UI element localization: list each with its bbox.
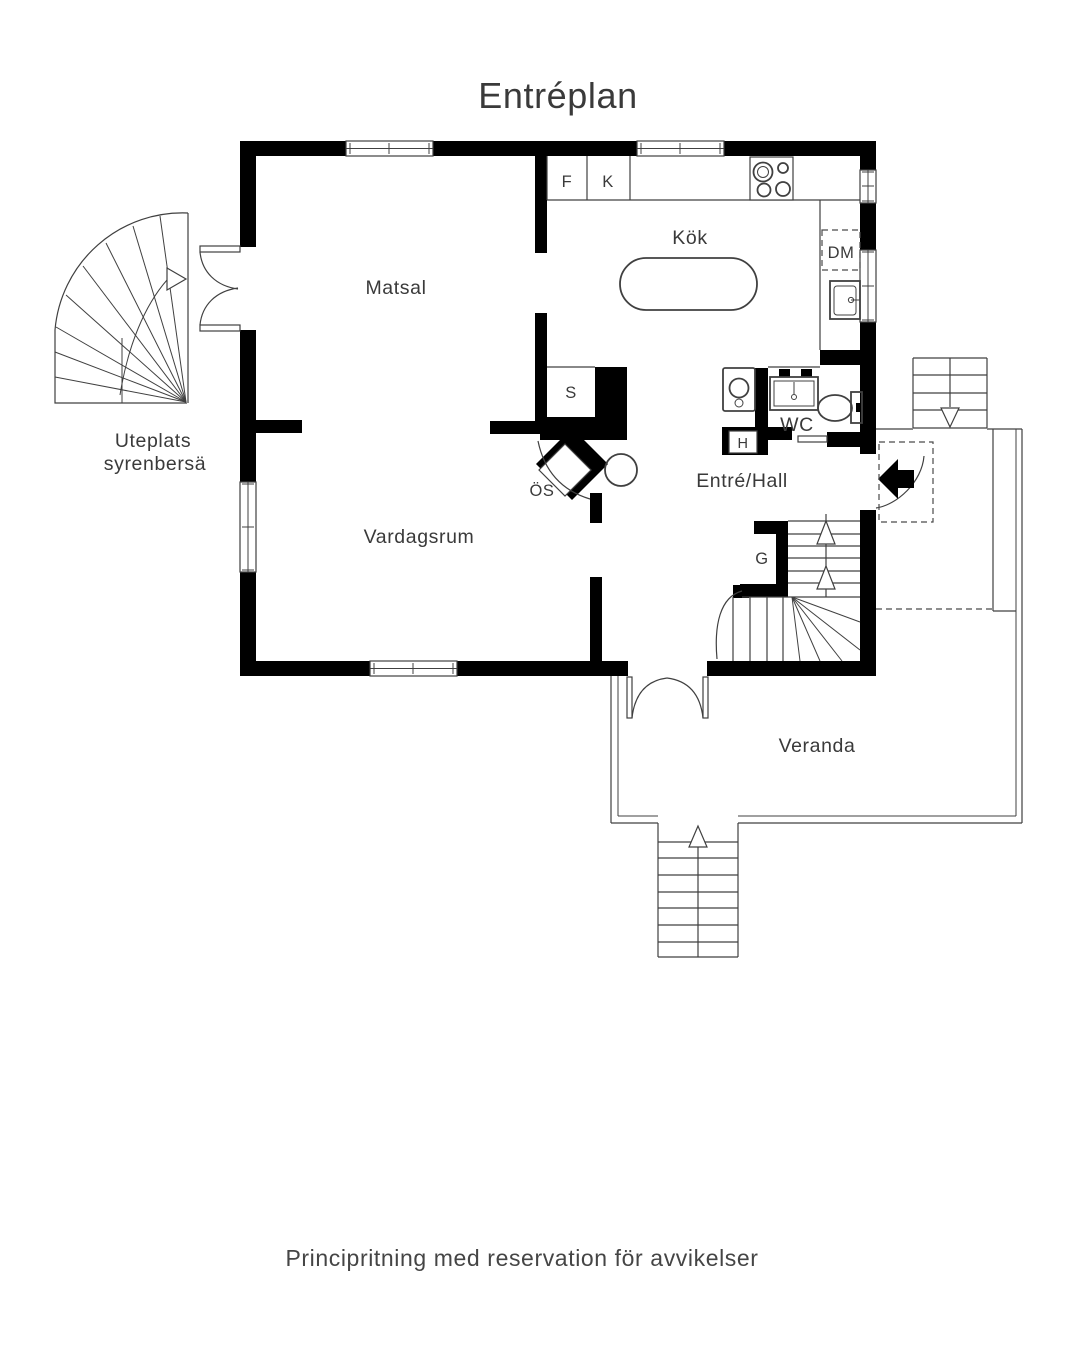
window-icon-left-vardagsrum: [240, 482, 256, 572]
window-icon-top-kok: [637, 141, 724, 156]
window-icon-right-upper: [860, 170, 876, 203]
up-arrow-icon: [817, 521, 835, 544]
outdoor-label-uteplats: Uteplats: [115, 430, 191, 452]
wc-sink-icon: [770, 369, 818, 410]
washing-machine-icon: [723, 368, 755, 411]
veranda-double-door-icon: [627, 677, 708, 718]
outdoor-label-syrenbersa: syrenbersä: [104, 453, 206, 475]
room-label-entre-hall: Entré/Hall: [696, 470, 788, 492]
disclaimer-text: Principritning med reservation för avvik…: [285, 1245, 758, 1271]
uteplats-double-door-icon: [200, 246, 240, 331]
page-title: Entréplan: [478, 75, 638, 116]
entry-arrow-icon: [878, 459, 914, 499]
kitchen-fixtures: [547, 156, 860, 367]
room-label-kok: Kök: [672, 227, 707, 249]
stair-curve: [716, 591, 742, 659]
kitchen-sink-icon: [830, 281, 860, 319]
kitchen-island: [620, 258, 757, 310]
label-dishwasher-dm: DM: [828, 244, 855, 262]
up-arrow-icon: [817, 566, 835, 589]
room-label-matsal: Matsal: [365, 277, 426, 299]
chimney-icon: [605, 454, 637, 486]
window-icon-top-matsal: [346, 141, 433, 156]
room-label-vardagsrum: Vardagsrum: [364, 526, 475, 548]
window-icon-right-lower: [860, 250, 876, 322]
room-label-wc: WC: [780, 414, 814, 436]
label-closet-h: H: [737, 436, 748, 452]
stair-side: [913, 358, 987, 428]
room-label-veranda: Veranda: [779, 735, 856, 757]
stair-uteplats-fan: [55, 213, 188, 403]
veranda-outline: [611, 429, 1022, 823]
toilet-icon: [818, 392, 862, 423]
wc-sliding-door: [798, 436, 827, 442]
floorplan-drawing: Entréplan Matsal Kök Vardagsrum Entré/Ha…: [0, 0, 1080, 1350]
stove-icon: [750, 157, 793, 200]
up-arrow-icon: [689, 826, 707, 847]
label-closet-s: S: [565, 384, 577, 402]
window-icon-bottom-vardagsrum: [370, 661, 457, 676]
label-freezer: K: [602, 173, 614, 191]
down-arrow-icon: [941, 408, 959, 427]
floorplan-page: Entréplan Matsal Kök Vardagsrum Entré/Ha…: [0, 0, 1080, 1350]
label-fireplace-os: ÖS: [529, 482, 554, 500]
label-fridge: F: [562, 173, 573, 191]
entrance: [876, 429, 1016, 611]
stair-veranda-front: [658, 823, 738, 957]
right-arrow-icon: [167, 268, 186, 290]
label-closet-g: G: [755, 550, 768, 568]
